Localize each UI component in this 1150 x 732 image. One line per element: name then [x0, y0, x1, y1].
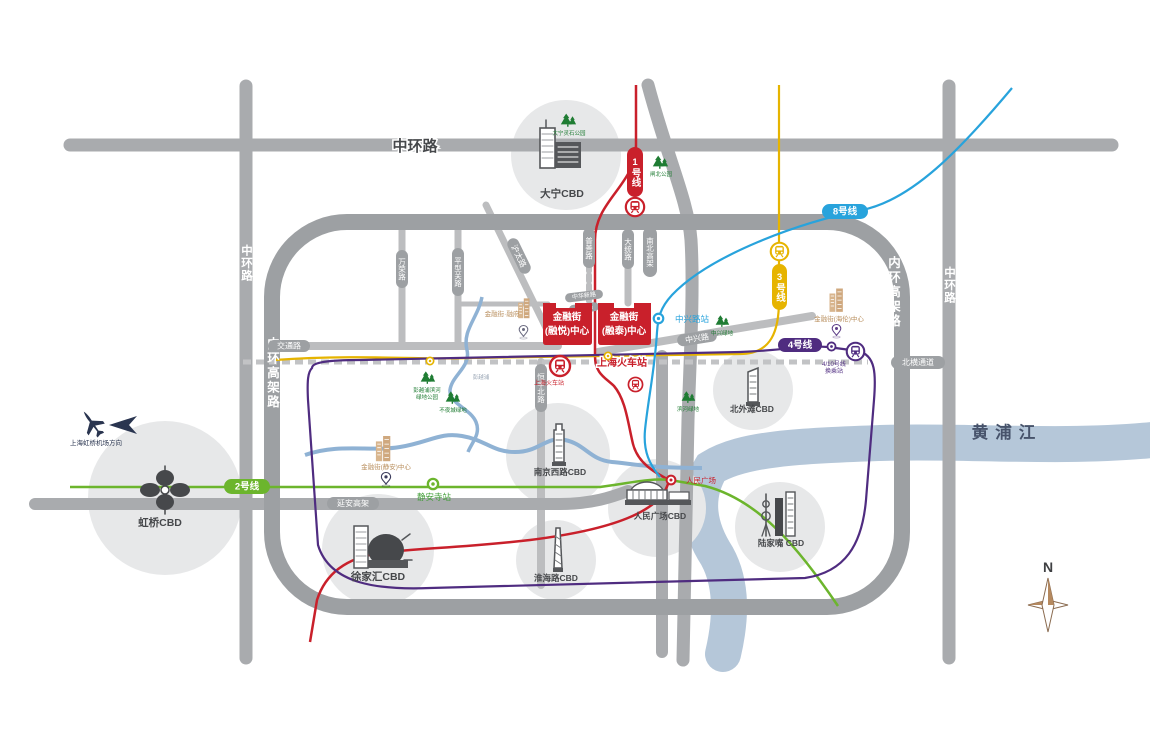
- direction-arrow-icon: [109, 416, 137, 434]
- compass: N: [1028, 559, 1068, 632]
- line4-metro-icon: [847, 343, 865, 361]
- pushan-label: 普善路: [583, 228, 595, 268]
- line4-badge: 4号线: [778, 338, 822, 352]
- beiwaitan-building-icon: [746, 368, 760, 406]
- airplane-icon: [76, 406, 109, 441]
- daning-cbd-label: 大宁CBD: [540, 187, 584, 200]
- location-map: 彭越浦 中环路 中环路 中环路 内环高架路 内环高架路 南北高架 延安高架 北横…: [0, 0, 1150, 732]
- lujiazui-building-icon: [762, 492, 795, 536]
- pengyuepu-green-label-1: 彭越浦滨河: [413, 386, 441, 394]
- beiheng-label: 北横通道: [891, 356, 945, 369]
- nanbei-label: 南北高架: [643, 227, 657, 277]
- nanjingwest-building-icon: [552, 424, 566, 466]
- compass-north-label: N: [1043, 559, 1053, 575]
- site-a-name-1: 金融街: [552, 311, 582, 323]
- wanrong-label: 万荣路: [396, 250, 408, 288]
- map-canvas: 彭越浦 中环路 中环路 中环路 内环高架路 内环高架路 南北高架 延安高架 北横…: [0, 0, 1150, 732]
- railway-metro-icon: [628, 377, 642, 391]
- line3-stop-east-icon: [604, 352, 611, 359]
- zhongxing-station-icon: [654, 314, 664, 324]
- hengfengbei-label: 恒丰北路: [535, 364, 547, 412]
- huangpu-river-label: 黄浦江: [972, 422, 1043, 442]
- svg-text:2号线: 2号线: [235, 481, 260, 493]
- shanghai-railway-metro-label: 上海火车站: [534, 379, 564, 387]
- svg-text:万荣路: 万荣路: [397, 257, 406, 280]
- jingan-center-pin-icon: [381, 473, 390, 488]
- jingansi-station-icon: [428, 479, 438, 489]
- renmin-station-label: 人民广场: [686, 475, 716, 485]
- site-b-name-2: (融泰)中心: [602, 325, 647, 337]
- svg-text:4号线: 4号线: [788, 339, 813, 351]
- line8-badge: 8号线: [822, 204, 868, 219]
- midring-right-label: 中环路: [943, 265, 956, 303]
- creek-label: 彭越浦: [473, 373, 490, 381]
- hailun-center-pin-icon: [832, 325, 841, 339]
- zhongxing-green-tree-icon: [716, 315, 730, 327]
- svg-text:3号线: 3号线: [774, 272, 786, 303]
- midring-left-label: 中环路: [240, 243, 253, 281]
- interchange-station-icon: [827, 342, 835, 350]
- svg-text:平型关路: 平型关路: [453, 257, 462, 288]
- rongfu-pin-icon: [519, 326, 528, 340]
- svg-text:8号线: 8号线: [833, 206, 858, 218]
- pingxingguan-label: 平型关路: [452, 248, 464, 296]
- shanghai-railway-metro-icon: [550, 356, 570, 376]
- site-block-b: [598, 303, 651, 345]
- line3-badge: 3号线: [772, 264, 787, 310]
- innerring-right-label: 内环高架路: [886, 255, 901, 329]
- svg-text:北横通道: 北横通道: [902, 357, 934, 367]
- svg-text:延安高架: 延安高架: [337, 498, 369, 508]
- site-block-a: [543, 303, 592, 345]
- interchange-label-1: 4/10号线: [822, 360, 846, 368]
- svg-text:1号线: 1号线: [630, 157, 642, 188]
- lujiazui-cbd-label: 陆家嘴 CBD: [758, 538, 804, 548]
- xujiahui-cbd-label: 徐家汇CBD: [350, 570, 406, 583]
- jiaotong-label: 交通路: [268, 340, 310, 352]
- huaihai-cbd-label: 淮海路CBD: [534, 573, 578, 583]
- datong-label: 大统路: [622, 229, 634, 269]
- airport-direction-label: 上海虹桥机场方向: [70, 438, 122, 447]
- line2-badge: 2号线: [224, 479, 270, 494]
- svg-text:普善路: 普善路: [584, 235, 593, 259]
- zhongxing-station-label: 中兴路站: [675, 314, 710, 324]
- renmin-cbd-label: 人民广场CBD: [634, 511, 686, 521]
- line1-metro-icon: [626, 198, 644, 216]
- svg-text:大统路: 大统路: [623, 236, 632, 260]
- line3-metro-icon: [771, 243, 789, 261]
- rongfu-label: 金融街·融府: [485, 309, 520, 318]
- pengyuepu-green-tree-icon: [421, 371, 435, 383]
- line3-stop-west-icon: [426, 357, 433, 364]
- renmin-station-icon: [667, 476, 676, 485]
- svg-text:交通路: 交通路: [277, 341, 301, 351]
- jingansi-station-label: 静安寺站: [417, 492, 452, 502]
- pengyuepu-green-label-2: 绿地公园: [416, 393, 439, 401]
- hailun-center-building-icon: [830, 289, 843, 312]
- site-b-name-1: 金融街: [609, 311, 639, 323]
- midring-top-label: 中环路: [392, 137, 438, 155]
- jingan-center-label: 金融街(静安)中心: [361, 462, 411, 471]
- yanan-label: 延安高架: [327, 497, 379, 510]
- hongqiao-cbd-label: 虹桥CBD: [138, 516, 182, 529]
- beiwaitan-cbd-label: 北外滩CBD: [730, 404, 774, 414]
- daning-park-label: 大宁灵石公园: [552, 129, 586, 137]
- buyecheng-green-label: 不夜城绿地: [439, 406, 467, 414]
- hailun-center-label: 金融街(海伦)中心: [814, 314, 864, 323]
- rongfu-building-icon: [518, 298, 529, 318]
- zhongxing-green-label: 中兴绿地: [711, 329, 734, 337]
- svg-text:南北高架: 南北高架: [645, 236, 654, 268]
- site-a-name-2: (融悦)中心: [545, 325, 590, 337]
- interchange-label-2: 换乘站: [825, 367, 843, 375]
- nanjingwest-cbd-label: 南京西路CBD: [534, 467, 586, 477]
- riverside-green-label: 滨河绿地: [677, 405, 700, 413]
- zhabei-park-label: 闸北公园: [650, 170, 673, 178]
- line1-badge: 1号线: [627, 147, 643, 197]
- zhonghuaxin-label: 中华新路: [565, 289, 604, 303]
- svg-text:恒丰北路: 恒丰北路: [536, 372, 545, 404]
